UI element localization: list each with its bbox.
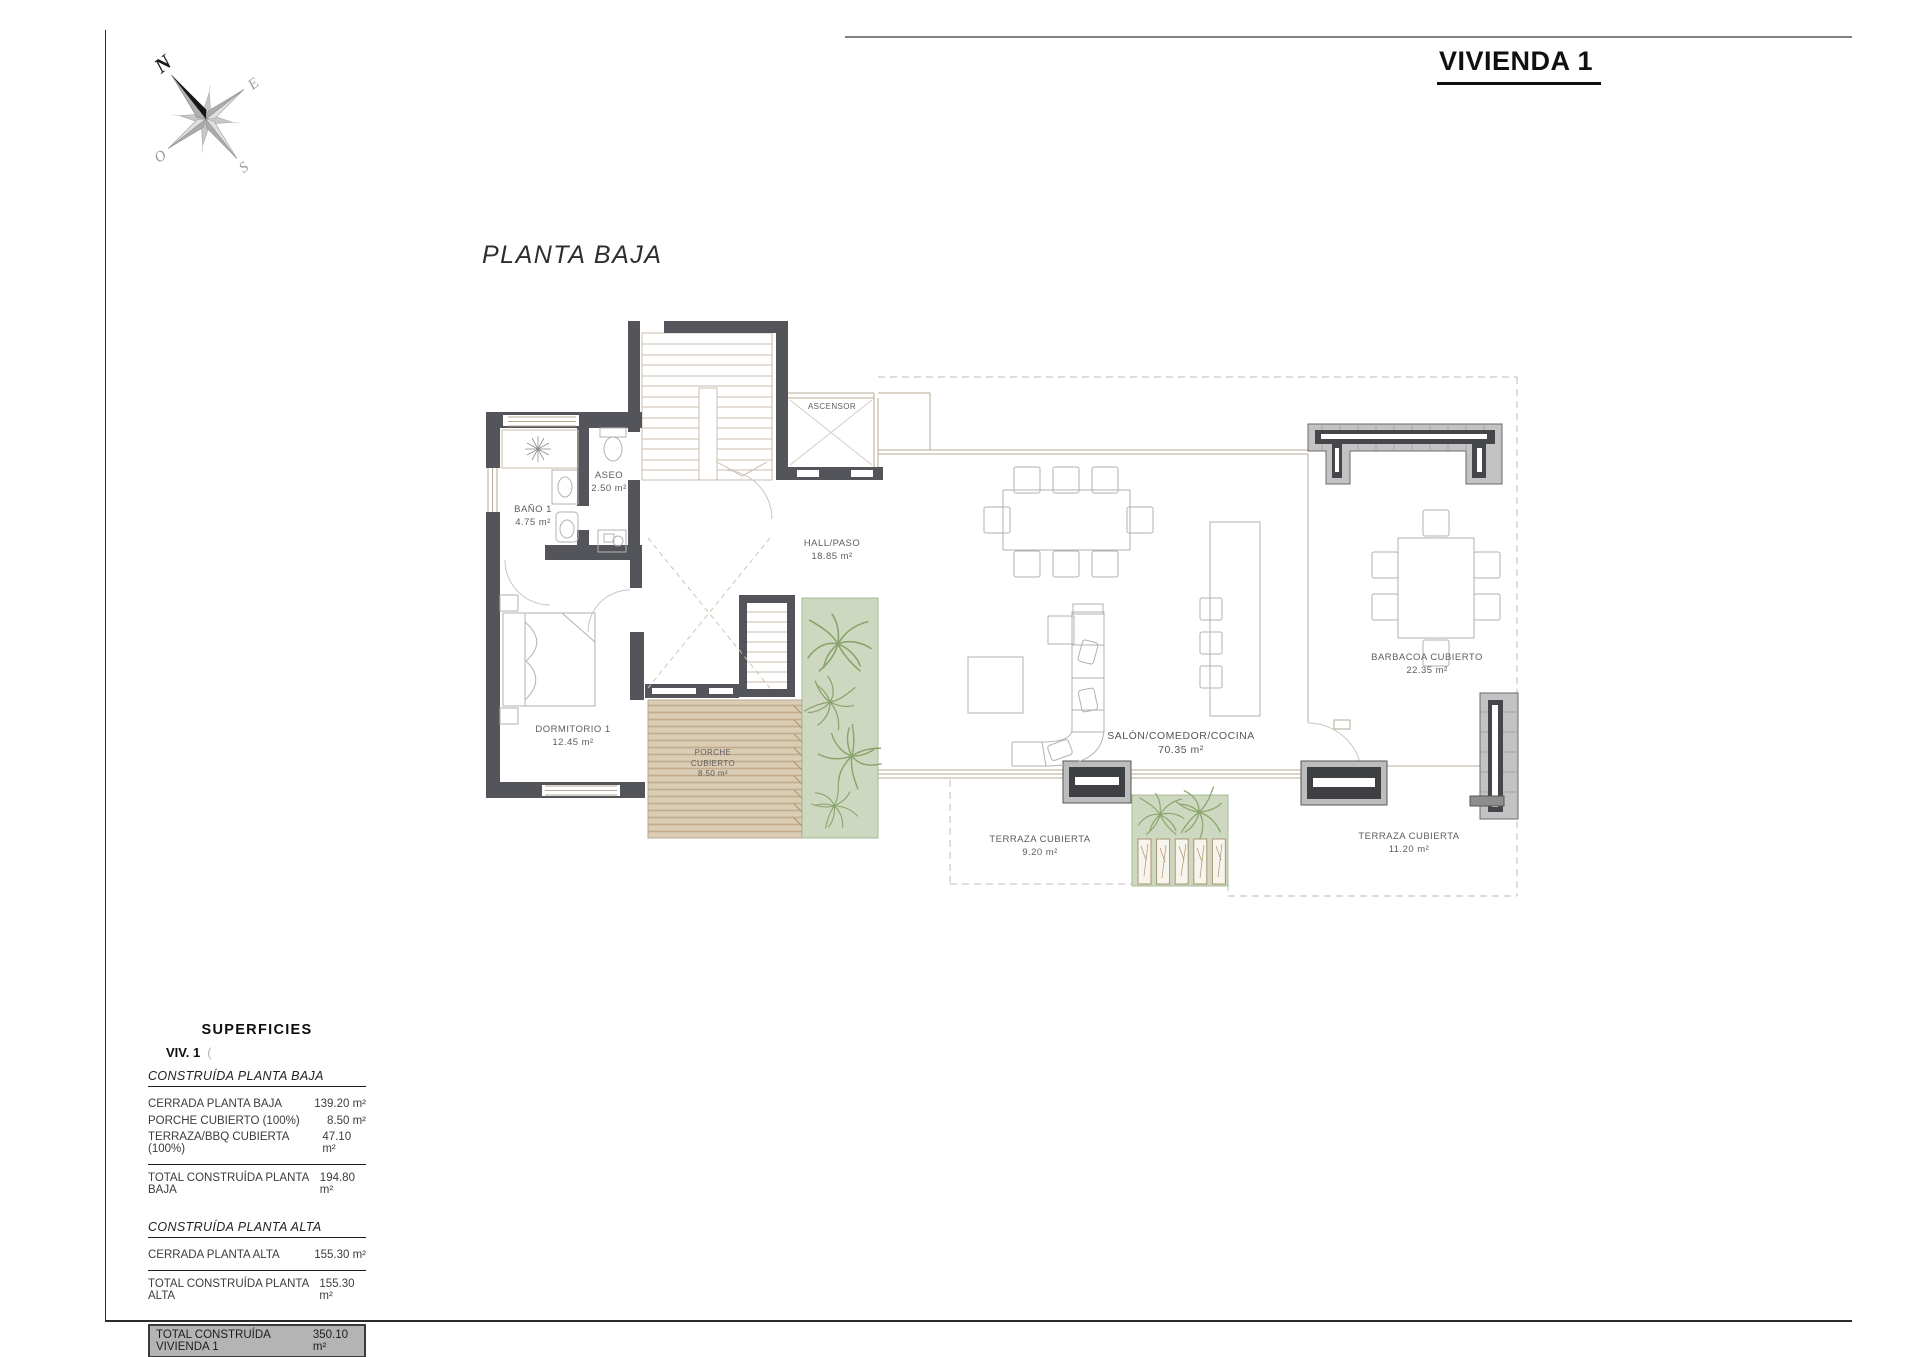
compass-east-label: E xyxy=(244,75,262,94)
table-divider xyxy=(148,1164,366,1165)
compass-west-label: O xyxy=(152,147,171,166)
room-label-porche: PORCHECUBIERTO8.50 m² xyxy=(691,748,735,780)
total-planta-alta-row: TOTAL CONSTRUÍDA PLANTA ALTA155.30 m² xyxy=(148,1278,366,1302)
compass-rose-icon: N S E O xyxy=(105,15,299,214)
compass-south-label: S xyxy=(236,159,252,177)
table-row: PORCHE CUBIERTO (100%)8.50 m² xyxy=(148,1115,366,1127)
room-label-bano: BAÑO 14.75 m² xyxy=(514,504,552,529)
drawing-sheet: N S E O xyxy=(0,0,1920,1357)
superficies-subtitle: VIV. 1( xyxy=(166,1045,366,1060)
total-planta-baja-row: TOTAL CONSTRUÍDA PLANTA BAJA194.80 m² xyxy=(148,1172,366,1196)
sheet-title: VIVIENDA 1 xyxy=(1437,46,1601,85)
room-label-hall: HALL/PASO18.85 m² xyxy=(804,538,860,563)
room-label-ascensor: ASCENSOR xyxy=(808,402,856,413)
plan-name-label: PLANTA BAJA xyxy=(482,241,662,270)
room-label-salon: SALÓN/COMEDOR/COCINA70.35 m² xyxy=(1107,730,1255,758)
room-label-terraza-izquierda: TERRAZA CUBIERTA9.20 m² xyxy=(989,834,1090,859)
glazing-lines xyxy=(878,450,1480,778)
room-label-aseo: ASEO2.50 m² xyxy=(591,470,627,495)
wood-slats xyxy=(1138,839,1225,884)
heading-planta-baja: CONSTRUÍDA PLANTA BAJA xyxy=(148,1069,366,1087)
staircase xyxy=(642,333,772,480)
garden-steps xyxy=(739,595,795,697)
grand-total-row: TOTAL CONSTRUÍDA VIVIENDA 1350.10 m² xyxy=(148,1324,366,1357)
table-divider xyxy=(148,1270,366,1271)
table-row: TERRAZA/BBQ CUBIERTA (100%)47.10 m² xyxy=(148,1131,366,1155)
room-label-terraza-derecha: TERRAZA CUBIERTA11.20 m² xyxy=(1358,831,1459,856)
stone-walls xyxy=(1063,424,1518,819)
room-label-barbacoa: BARBACOA CUBIERTO22.35 m² xyxy=(1371,652,1483,677)
superficies-title: SUPERFICIES xyxy=(148,1022,366,1038)
room-label-dormitorio: DORMITORIO 112.45 m² xyxy=(535,724,610,749)
table-row: CERRADA PLANTA ALTA155.30 m² xyxy=(148,1249,366,1261)
heading-planta-alta: CONSTRUÍDA PLANTA ALTA xyxy=(148,1220,366,1238)
superficies-table: SUPERFICIES VIV. 1( CONSTRUÍDA PLANTA BA… xyxy=(148,1022,366,1357)
table-row: CERRADA PLANTA BAJA139.20 m² xyxy=(148,1098,366,1110)
compass-north-label: N xyxy=(149,49,177,78)
